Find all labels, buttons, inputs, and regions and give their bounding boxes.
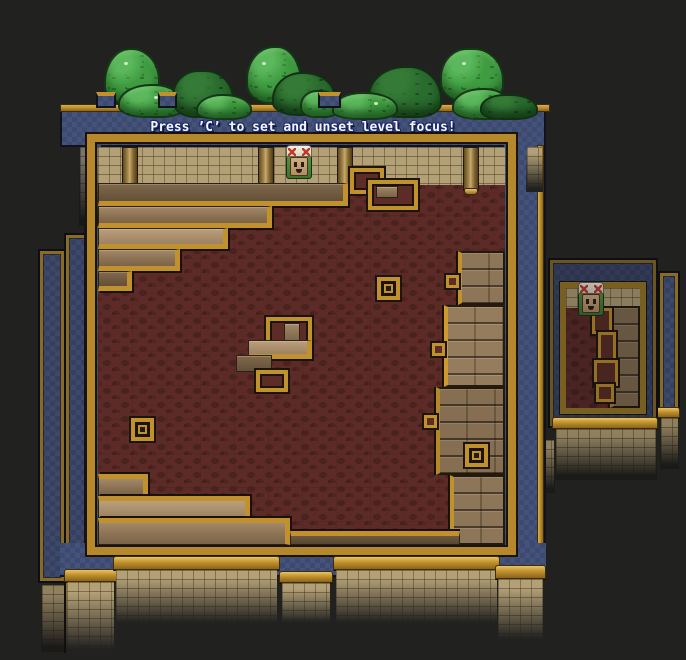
bandana-x-mark — [288, 148, 296, 156]
gold-ledge — [113, 556, 280, 570]
ornament-core — [472, 451, 481, 460]
leaf-highlight — [262, 62, 266, 65]
wood-stair — [98, 518, 290, 545]
wood-platform — [98, 183, 348, 206]
brick-pillar — [42, 585, 64, 651]
wood-platform — [98, 206, 272, 228]
gold-trim-block — [446, 275, 459, 288]
tree-bush — [196, 94, 252, 120]
bandana-x-mark — [302, 148, 310, 156]
tree-bush — [480, 94, 538, 120]
character-mouth — [296, 169, 302, 173]
wood-platform — [98, 249, 180, 271]
brick-pillar — [282, 583, 330, 625]
side-room-right[interactable] — [548, 258, 658, 428]
focus-hint-message: Press ’C’ to set and unset level focus! — [60, 119, 546, 137]
level-interior — [98, 147, 505, 545]
leaf-highlight — [124, 62, 128, 65]
border-notch — [158, 92, 177, 108]
wood-stair — [290, 531, 460, 545]
gold-ledge — [537, 145, 544, 577]
wood-block — [376, 186, 398, 198]
brick-pillar — [527, 147, 542, 191]
brick-pillar — [661, 418, 678, 468]
side-room-right-far[interactable] — [658, 271, 680, 419]
brick-pillar — [556, 429, 656, 479]
wood-stair — [98, 474, 148, 496]
gold-ledge — [333, 556, 500, 570]
unfocused-dim-overlay — [548, 258, 658, 428]
wood-stair — [98, 496, 250, 518]
plank-column — [444, 305, 505, 387]
wood-post — [463, 147, 479, 191]
gold-ledge — [495, 565, 546, 579]
wood-platform — [98, 228, 228, 249]
border-notch — [96, 92, 116, 108]
main-room-character[interactable] — [286, 145, 312, 180]
gold-tile-ornament — [131, 418, 154, 441]
ornament-core — [384, 284, 393, 293]
brick-pillar — [498, 579, 543, 643]
brick-pillar — [116, 570, 277, 626]
brick-pillar — [67, 582, 114, 654]
border-notch — [318, 92, 341, 108]
character-face — [290, 157, 308, 176]
character-eye — [301, 162, 304, 167]
gold-trim-block — [368, 180, 418, 210]
brick-pillar — [336, 570, 497, 626]
gold-trim-block — [432, 343, 445, 356]
character-bandana — [286, 145, 312, 157]
character-eye — [294, 162, 297, 167]
main-level-room[interactable]: Press ’C’ to set and unset level focus! — [60, 105, 546, 577]
leaf-highlight — [462, 62, 466, 65]
post-finial — [464, 188, 478, 195]
ornament-core — [138, 425, 147, 434]
gold-trim-block — [424, 415, 437, 428]
game-viewport[interactable]: Press ’C’ to set and unset level focus! — [0, 0, 686, 660]
leaf-highlight — [374, 102, 378, 105]
tree-bush — [332, 92, 398, 120]
gold-trim-block — [256, 370, 288, 392]
plank-column — [458, 251, 505, 305]
wood-platform — [98, 271, 132, 291]
gold-tile-ornament — [377, 277, 400, 300]
gold-tile-ornament — [465, 444, 488, 467]
